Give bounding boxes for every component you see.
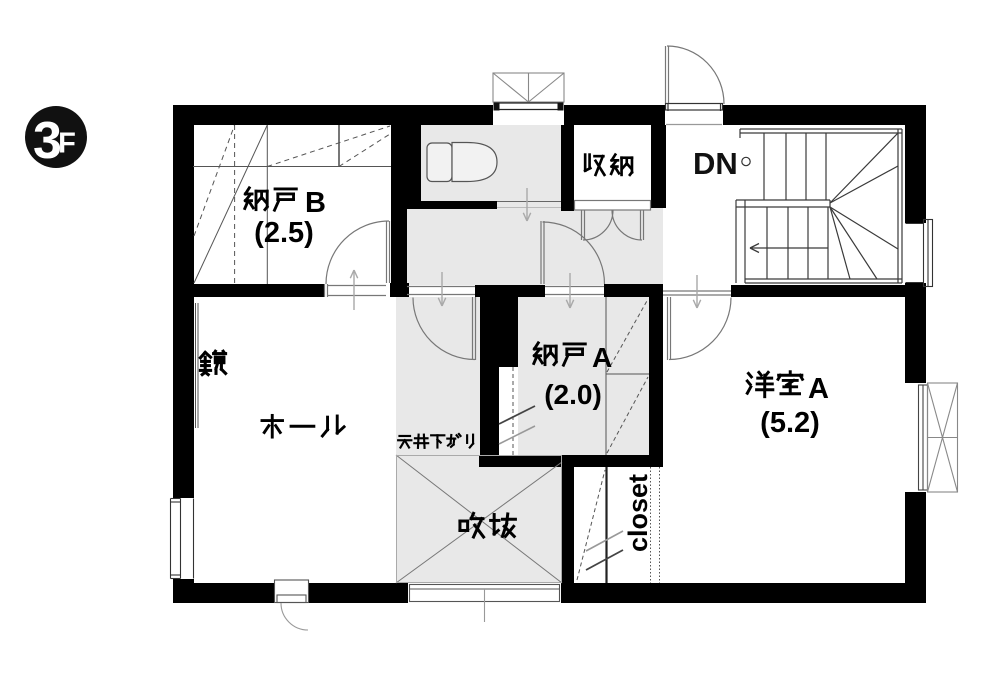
svg-text:(2.5): (2.5) — [254, 217, 314, 249]
svg-text:closet: closet — [623, 474, 653, 552]
svg-text:B: B — [305, 187, 326, 219]
svg-text:(5.2): (5.2) — [760, 407, 820, 439]
svg-text:3: 3 — [33, 112, 61, 170]
svg-text:DN: DN — [693, 146, 738, 181]
svg-text:A: A — [808, 373, 829, 405]
svg-text:A: A — [592, 342, 612, 373]
svg-text:(2.0): (2.0) — [544, 379, 602, 410]
svg-text:F: F — [58, 128, 76, 160]
